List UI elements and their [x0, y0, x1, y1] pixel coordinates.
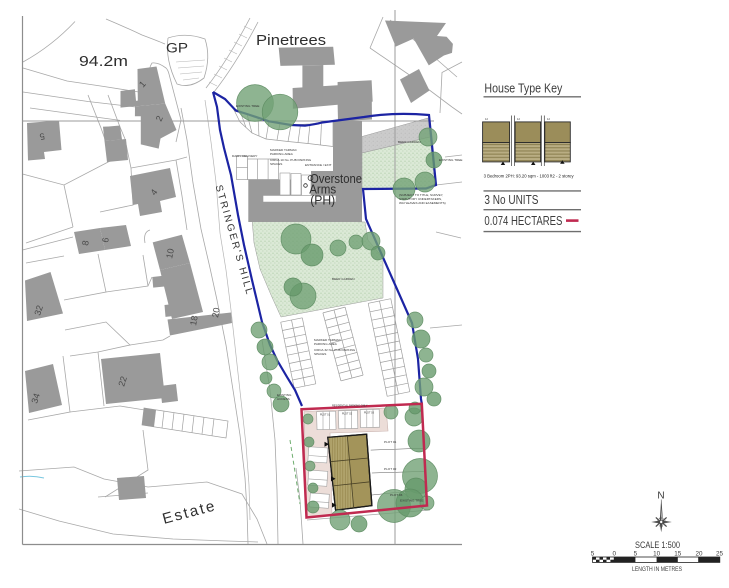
- svg-text:10: 10: [164, 248, 176, 260]
- svg-text:20: 20: [695, 551, 703, 558]
- svg-text:3 No UNITS: 3 No UNITS: [484, 193, 538, 207]
- svg-text:0: 0: [612, 551, 616, 558]
- svg-text:RESIDENTIAL PARKING ONLY: RESIDENTIAL PARKING ONLY: [332, 405, 368, 408]
- svg-text:Pinetrees: Pinetrees: [256, 32, 326, 49]
- svg-text:18: 18: [188, 315, 200, 327]
- svg-text:BEER GARDEN: BEER GARDEN: [332, 277, 355, 281]
- svg-text:(PH): (PH): [310, 193, 335, 207]
- svg-text:25: 25: [716, 551, 724, 558]
- svg-text:94.2m: 94.2m: [79, 53, 128, 70]
- svg-text:SPACES: SPACES: [314, 352, 326, 356]
- svg-text:20: 20: [210, 307, 222, 319]
- svg-text:EXISTING TREE: EXISTING TREE: [236, 104, 260, 108]
- svg-text:15: 15: [674, 551, 682, 558]
- svg-text:WAYLEAVES AND EASEMENTS): WAYLEAVES AND EASEMENTS): [399, 201, 446, 205]
- svg-text:BEER GARDEN: BEER GARDEN: [398, 140, 421, 144]
- svg-text:SCALE 1:500: SCALE 1:500: [635, 540, 680, 551]
- svg-text:PLOT 03: PLOT 03: [390, 493, 403, 497]
- svg-text:3 Bedroom 2PH: 93.20 sqm - 10: 3 Bedroom 2PH: 93.20 sqm - 1003 ft2 - 2 …: [484, 174, 575, 179]
- svg-text:PLOT 02: PLOT 02: [342, 413, 353, 416]
- svg-text:House Type Key: House Type Key: [484, 82, 563, 96]
- svg-text:5: 5: [591, 551, 595, 558]
- svg-text:ACCESS: ACCESS: [277, 397, 290, 401]
- svg-text:PLOT 01: PLOT 01: [384, 440, 397, 444]
- svg-text:GP: GP: [166, 41, 188, 57]
- svg-text:ENTRANCE / EXIT: ENTRANCE / EXIT: [305, 163, 332, 167]
- svg-text:PARKING AREA: PARKING AREA: [270, 152, 294, 156]
- svg-text:PLOT 02: PLOT 02: [384, 467, 397, 471]
- svg-text:EXISTING TREE: EXISTING TREE: [400, 499, 424, 503]
- svg-text:EXISTING TREE: EXISTING TREE: [439, 158, 463, 162]
- svg-text:SPACES: SPACES: [270, 162, 282, 166]
- svg-text:LENGTH IN METRES: LENGTH IN METRES: [632, 566, 682, 573]
- svg-text:PLOT 01: PLOT 01: [320, 414, 331, 417]
- svg-text:PARKING AREA: PARKING AREA: [314, 342, 338, 346]
- svg-text:DAIRY DELIVERY: DAIRY DELIVERY: [232, 154, 257, 158]
- svg-text:PLOT 03: PLOT 03: [364, 412, 375, 415]
- svg-text:0.074 HECTARES: 0.074 HECTARES: [484, 214, 562, 228]
- svg-text:5: 5: [634, 551, 638, 558]
- svg-text:10: 10: [653, 551, 661, 558]
